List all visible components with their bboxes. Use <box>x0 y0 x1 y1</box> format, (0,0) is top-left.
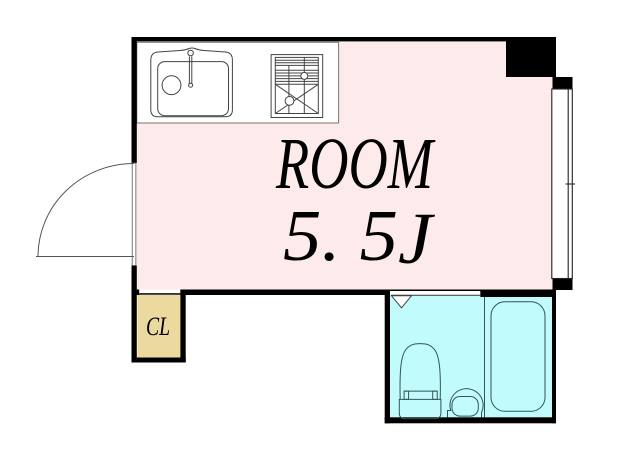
svg-text:5. 5J: 5. 5J <box>283 195 436 279</box>
svg-text:CL: CL <box>146 312 170 341</box>
svg-text:ROOM: ROOM <box>275 123 436 204</box>
